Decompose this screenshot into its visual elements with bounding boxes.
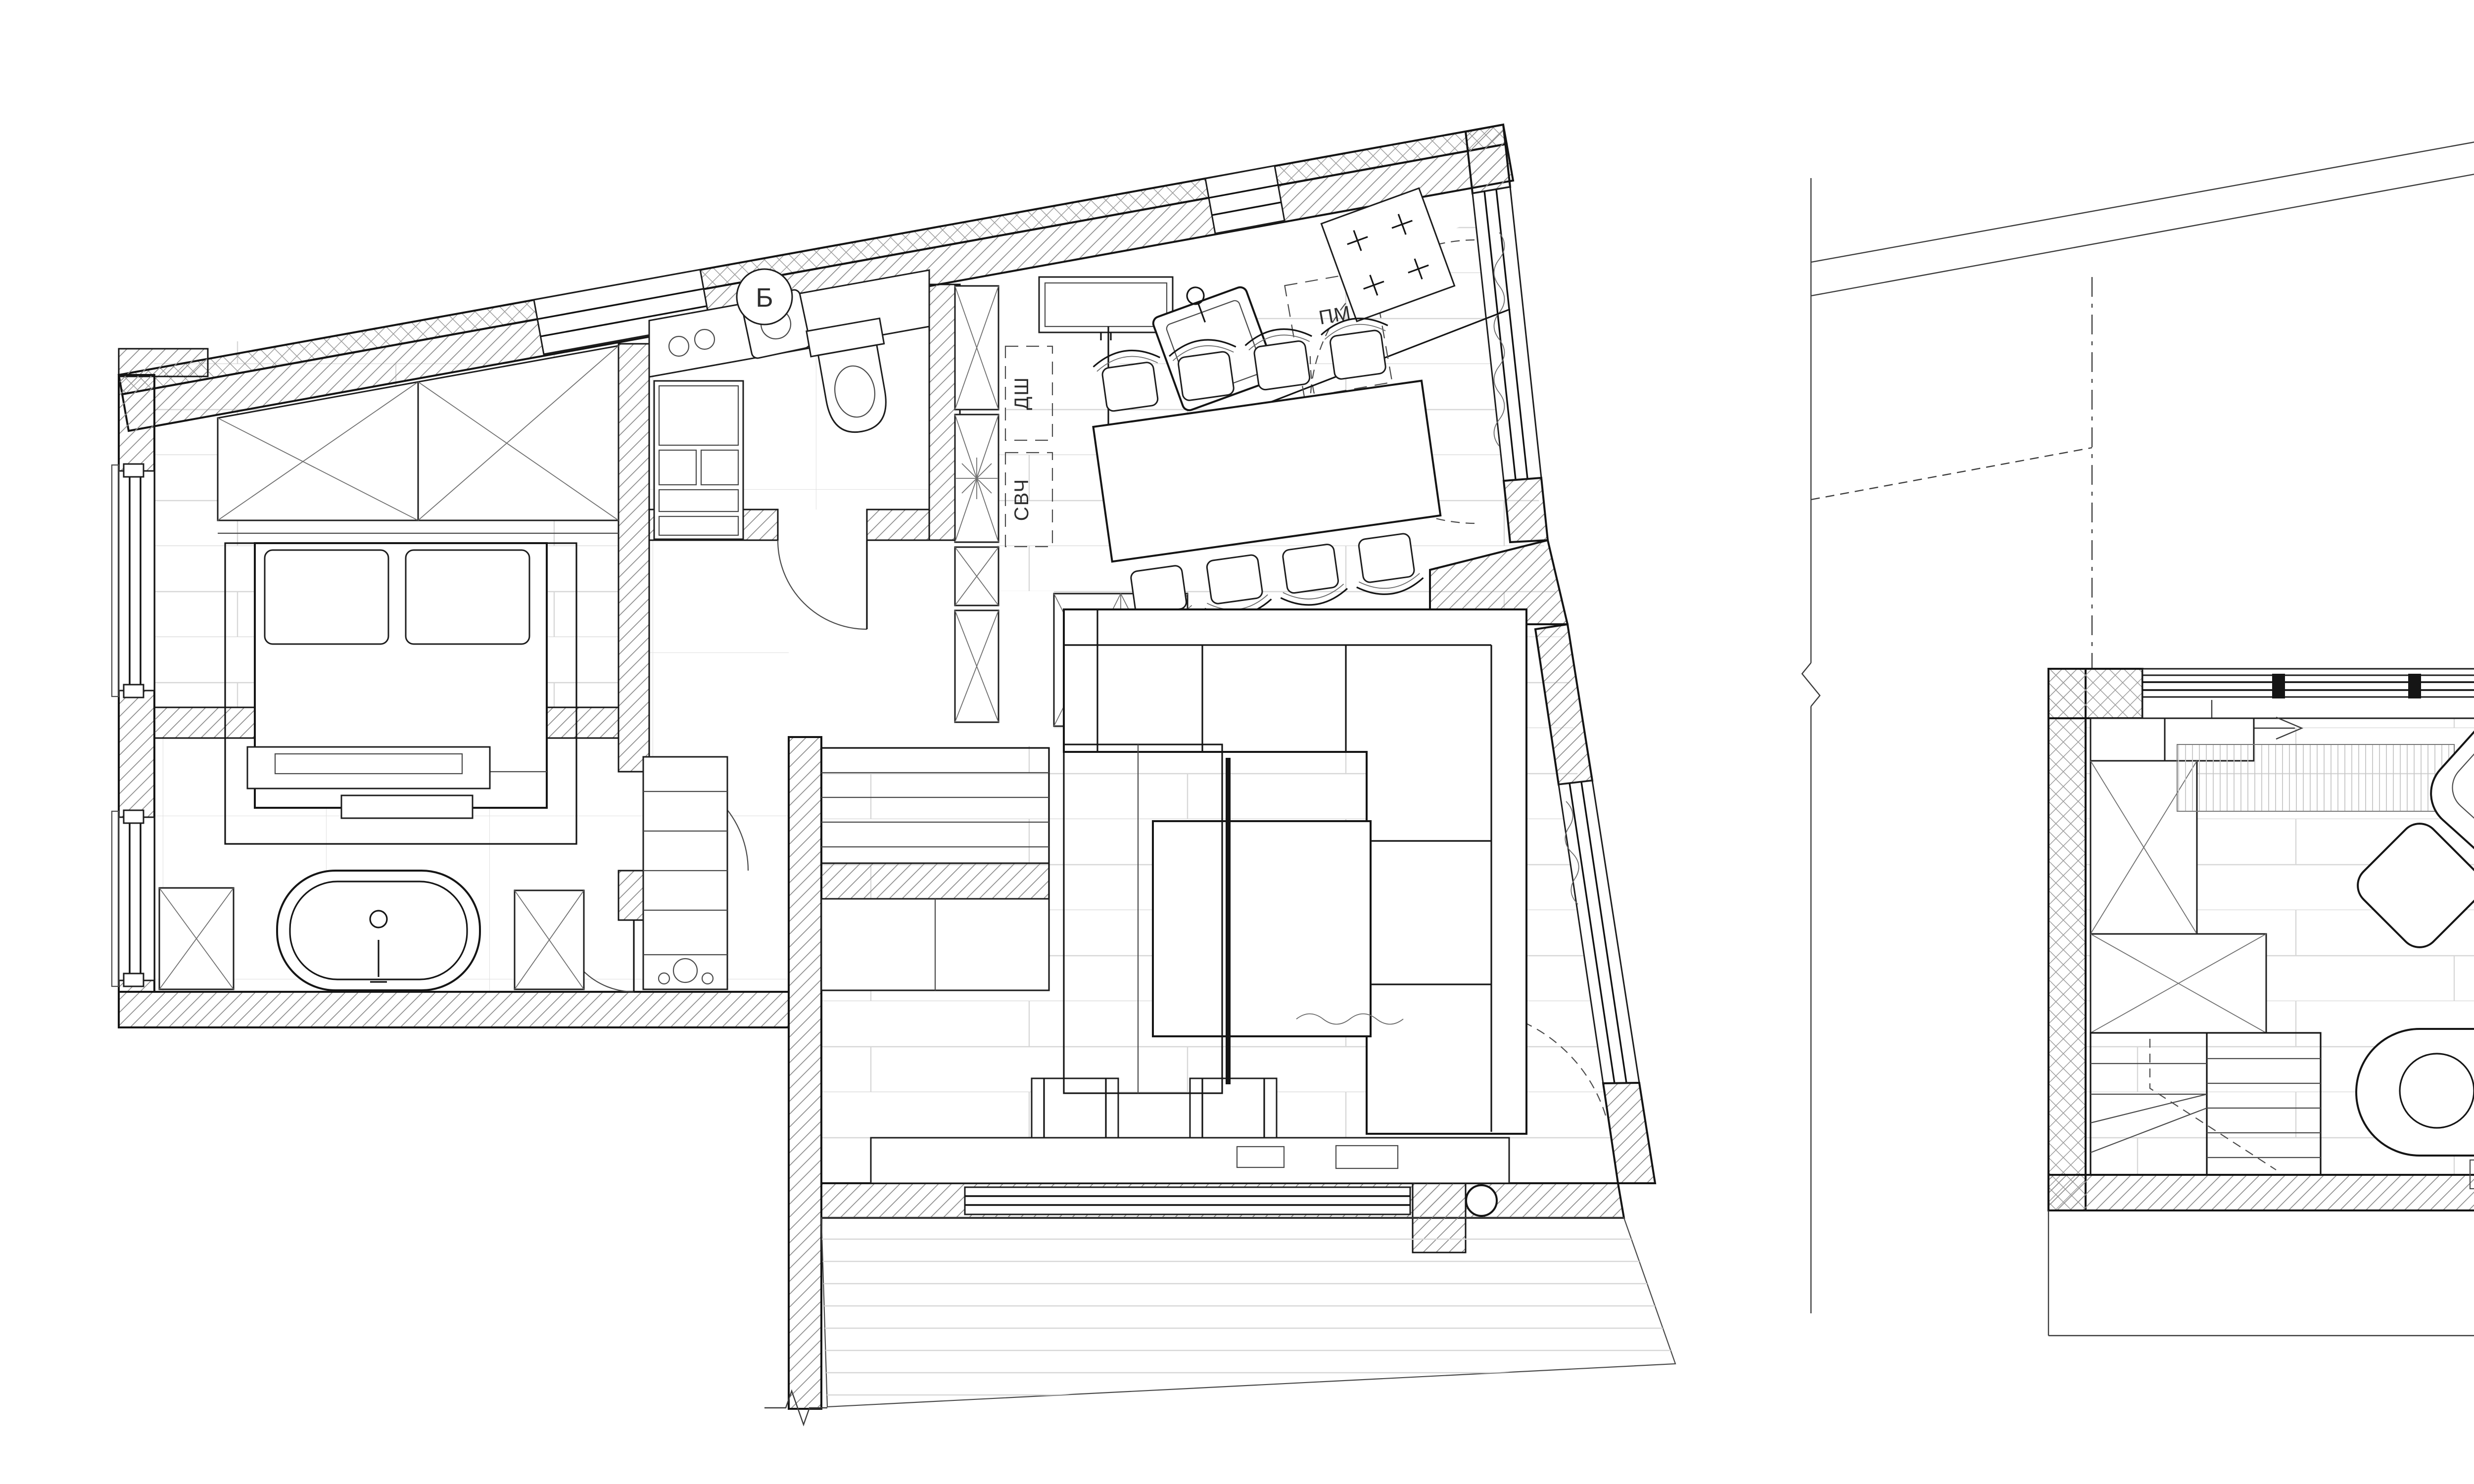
microwave-label: СВЧ — [1011, 478, 1033, 521]
coffee-table — [1153, 821, 1371, 1036]
break-mark — [1802, 663, 1820, 706]
round-column — [1466, 1185, 1497, 1216]
bathroom-south-wall — [119, 992, 789, 1027]
boiler-label: Б — [756, 283, 773, 313]
main-level-plan: Б ДШ СВЧ — [112, 125, 1682, 1425]
wc-south-wall-b — [867, 510, 929, 540]
boiler-mark: Б — [737, 269, 792, 325]
ground-line — [2048, 1210, 2474, 1355]
wardrobe-xbox — [2091, 934, 2266, 1033]
bath-corner-cabinet-left — [159, 888, 234, 989]
floor-plan-svg: Б ДШ СВЧ — [0, 0, 2474, 1484]
bath-corner-cabinet-right — [515, 890, 584, 989]
living-west-wall — [789, 737, 821, 1409]
mullion — [2272, 674, 2285, 698]
fridge — [1039, 277, 1173, 340]
dashed-roof-line — [1811, 448, 2092, 500]
oven-label: ДШ — [1011, 376, 1033, 410]
top-left-wall-stub — [119, 349, 208, 376]
cabinet-box — [2091, 718, 2165, 761]
bath-shelf-column — [643, 757, 727, 989]
stair-landing-edge — [821, 863, 1049, 899]
washer-column — [654, 381, 743, 539]
tall-cabinet-column — [955, 286, 999, 722]
wc-door-arc — [778, 540, 867, 629]
sloped-wall-window-2 — [1205, 166, 1285, 233]
upper-level-plan — [1802, 101, 2474, 1355]
left-window-2 — [112, 810, 154, 986]
south-wall — [2048, 1175, 2474, 1210]
vanity-counter — [247, 747, 490, 788]
bedroom-hall-wall — [618, 344, 649, 772]
pillow — [265, 550, 388, 644]
terrace — [764, 1218, 1682, 1425]
window-sill-cabinet — [871, 1138, 1509, 1183]
left-window-1 — [112, 464, 154, 697]
desk — [2356, 1029, 2474, 1156]
pillow — [406, 550, 529, 644]
fan-symbol — [956, 458, 998, 499]
vanity-shelf — [341, 795, 473, 818]
low-shelf — [2177, 744, 2454, 811]
mullion — [2408, 674, 2421, 698]
drawing-sheet: Б ДШ СВЧ — [0, 0, 2474, 1484]
west-wall — [2048, 669, 2086, 1210]
north-window-band — [2142, 675, 2474, 697]
